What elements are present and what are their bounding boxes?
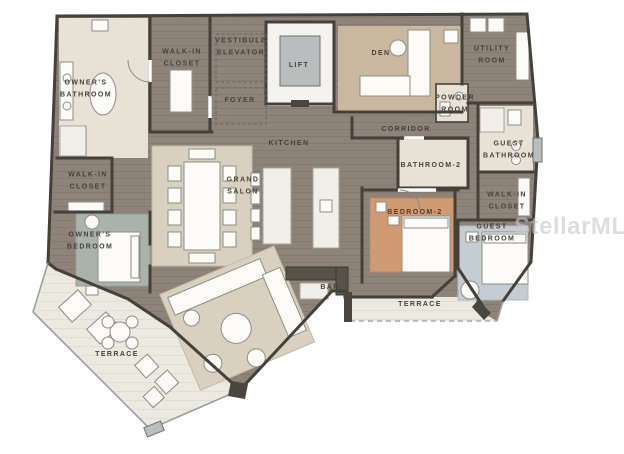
floor-plan-page: OWNER'S BATHROOM WALK-IN CLOSET VESTIBUL… [0, 0, 624, 454]
bathroom-2-floor [398, 140, 468, 188]
floor-plan-drawing [0, 0, 624, 454]
lift-car [280, 36, 320, 86]
closet-north-island [170, 70, 192, 112]
closet-east-shelf [518, 178, 530, 216]
lift-door [291, 100, 309, 107]
